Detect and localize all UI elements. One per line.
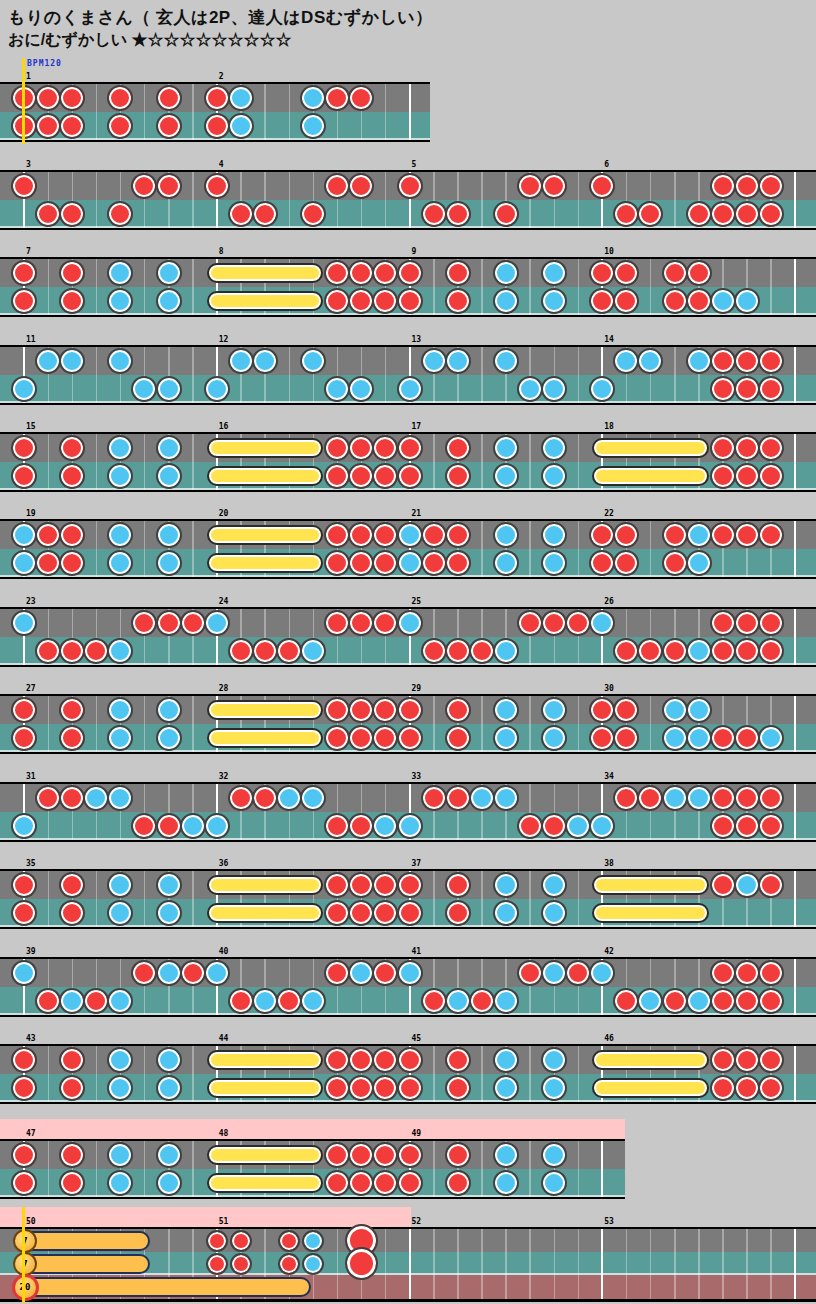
don-note — [710, 872, 736, 898]
beat-line — [650, 259, 652, 315]
measure-number: 7 — [26, 247, 31, 256]
ka-note — [156, 260, 182, 286]
don-note — [710, 638, 736, 664]
don-note — [421, 201, 447, 227]
ka-note — [493, 1047, 519, 1073]
don-note — [228, 201, 254, 227]
beat-line — [96, 84, 98, 140]
big-don-note — [345, 1247, 378, 1280]
don-note — [421, 522, 447, 548]
don-note — [59, 900, 85, 926]
beat-line — [481, 521, 483, 577]
beat-line — [264, 84, 266, 140]
ka-note — [541, 725, 567, 751]
measure-number: 35 — [26, 859, 36, 868]
don-note — [11, 1142, 37, 1168]
don-note — [517, 173, 543, 199]
ka-note — [156, 435, 182, 461]
don-note — [710, 348, 736, 374]
bpm-label: BPM120 — [27, 59, 62, 68]
don-note — [230, 1230, 252, 1252]
ka-note — [204, 376, 230, 402]
ka-note — [493, 900, 519, 926]
beat-line — [144, 521, 146, 577]
ka-note — [11, 550, 37, 576]
ka-note — [11, 813, 37, 839]
beat-line — [578, 1046, 580, 1102]
measure-number: 29 — [412, 684, 422, 693]
start-line — [22, 1207, 25, 1303]
measure-number: 27 — [26, 684, 36, 693]
don-note — [397, 260, 423, 286]
don-note — [59, 785, 85, 811]
don-note — [276, 988, 302, 1014]
don-note — [758, 960, 784, 986]
don-note — [11, 435, 37, 461]
ka-note — [300, 988, 326, 1014]
don-note — [710, 610, 736, 636]
balloon-tail-bar — [16, 1277, 311, 1297]
don-note — [59, 463, 85, 489]
don-note — [11, 260, 37, 286]
don-note — [541, 813, 567, 839]
measure-number: 39 — [26, 947, 36, 956]
measure-number: 26 — [604, 597, 614, 606]
barline — [794, 259, 796, 315]
ka-note — [493, 988, 519, 1014]
difficulty-line: おに/むずかしい ★☆☆☆☆☆☆☆☆☆ — [8, 30, 292, 51]
beat-line — [529, 871, 531, 927]
beat-line — [192, 871, 194, 927]
beat-line — [192, 434, 194, 490]
beat-line — [650, 521, 652, 577]
ka-note — [686, 697, 712, 723]
drumroll-bar — [207, 1145, 323, 1165]
gogo-strip — [0, 1207, 411, 1227]
ka-note — [35, 348, 61, 374]
don-note — [710, 988, 736, 1014]
ka-note — [493, 1075, 519, 1101]
don-note — [397, 900, 423, 926]
don-note — [206, 1230, 228, 1252]
don-note — [11, 697, 37, 723]
measure-number: 23 — [26, 597, 36, 606]
don-note — [445, 1170, 471, 1196]
ka-note — [686, 550, 712, 576]
beat-line — [433, 871, 435, 927]
don-note — [11, 725, 37, 751]
ka-note — [541, 1047, 567, 1073]
beat-line — [722, 1229, 724, 1299]
measure-number: 42 — [604, 947, 614, 956]
ka-note — [156, 1170, 182, 1196]
ka-note — [228, 85, 254, 111]
measure-number: 44 — [219, 1034, 229, 1043]
don-note — [11, 173, 37, 199]
beat-line — [698, 1229, 700, 1299]
don-note — [156, 610, 182, 636]
beat-line — [650, 696, 652, 752]
beat-line — [650, 1229, 652, 1299]
don-note — [565, 610, 591, 636]
beat-line — [96, 1046, 98, 1102]
ka-note — [493, 435, 519, 461]
measure-number: 2 — [219, 72, 224, 81]
don-note — [59, 435, 85, 461]
don-note — [758, 522, 784, 548]
beat-line — [433, 259, 435, 315]
measure-number: 33 — [412, 772, 422, 781]
don-note — [35, 550, 61, 576]
row-border-bottom — [0, 315, 816, 317]
beat-line — [433, 1046, 435, 1102]
don-note — [397, 1170, 423, 1196]
don-note — [493, 201, 519, 227]
don-note — [421, 638, 447, 664]
don-note — [734, 638, 760, 664]
beat-line — [433, 1229, 435, 1299]
don-note — [445, 550, 471, 576]
ka-note — [541, 463, 567, 489]
ka-note — [686, 785, 712, 811]
ka-note — [517, 376, 543, 402]
barline — [409, 1229, 411, 1299]
don-note — [397, 1047, 423, 1073]
measure-number: 21 — [412, 509, 422, 518]
don-note — [541, 610, 567, 636]
don-note — [710, 1047, 736, 1073]
beat-line — [192, 347, 194, 403]
ka-note — [541, 960, 567, 986]
row-border-bottom — [0, 490, 816, 492]
ka-note — [493, 872, 519, 898]
don-note — [59, 1047, 85, 1073]
measure-number: 43 — [26, 1034, 36, 1043]
ka-note — [421, 348, 447, 374]
don-note — [734, 348, 760, 374]
don-note — [710, 725, 736, 751]
barline — [794, 959, 796, 1015]
ka-note — [710, 288, 736, 314]
beat-line — [505, 1229, 507, 1299]
don-note — [59, 522, 85, 548]
beat-line — [529, 1229, 531, 1299]
ka-note — [397, 550, 423, 576]
drumroll-bar — [207, 263, 323, 283]
beat-line — [529, 521, 531, 577]
don-note — [758, 173, 784, 199]
ka-note — [397, 813, 423, 839]
measure-number: 30 — [604, 684, 614, 693]
ka-note — [59, 988, 85, 1014]
barline — [601, 1229, 603, 1299]
beat-line — [578, 696, 580, 752]
row-border-bottom — [0, 1102, 816, 1104]
drumroll-bar — [592, 438, 708, 458]
don-note — [758, 348, 784, 374]
row-border-bottom — [0, 228, 816, 230]
don-note — [35, 785, 61, 811]
beat-line — [192, 1141, 194, 1197]
measure-number: 50 — [26, 1217, 36, 1226]
don-note — [445, 201, 471, 227]
beat-line — [192, 84, 194, 140]
don-note — [734, 201, 760, 227]
don-note — [59, 697, 85, 723]
don-note — [421, 785, 447, 811]
don-note — [397, 288, 423, 314]
beat-line — [337, 1229, 339, 1299]
beat-line — [746, 1229, 748, 1299]
beat-line — [433, 696, 435, 752]
beat-line — [481, 172, 483, 228]
don-note — [397, 1075, 423, 1101]
beat-line — [96, 259, 98, 315]
don-note — [59, 85, 85, 111]
beat-line — [481, 434, 483, 490]
don-note — [662, 260, 688, 286]
don-note — [710, 1075, 736, 1101]
beat-line — [144, 259, 146, 315]
don-note — [734, 173, 760, 199]
don-note — [252, 785, 278, 811]
don-note — [445, 900, 471, 926]
ka-note — [541, 1142, 567, 1168]
don-note — [59, 201, 85, 227]
beat-line — [529, 434, 531, 490]
don-note — [59, 288, 85, 314]
beat-line — [144, 1141, 146, 1197]
drumroll-bar — [592, 903, 708, 923]
don-note — [180, 610, 206, 636]
beat-line — [48, 434, 50, 490]
measure-number: 48 — [219, 1129, 229, 1138]
ka-note — [204, 813, 230, 839]
row-border-bottom — [0, 1299, 816, 1302]
measure-number: 17 — [412, 422, 422, 431]
ka-note — [493, 785, 519, 811]
ka-note — [493, 638, 519, 664]
don-note — [35, 522, 61, 548]
beat-line — [385, 1229, 387, 1299]
ka-note — [493, 550, 519, 576]
don-note — [734, 960, 760, 986]
don-note — [758, 1075, 784, 1101]
don-note — [35, 988, 61, 1014]
don-note — [445, 697, 471, 723]
drumroll-bar — [207, 1173, 323, 1193]
ka-note — [686, 638, 712, 664]
ka-note — [662, 697, 688, 723]
ka-note — [59, 348, 85, 374]
ka-note — [397, 610, 423, 636]
ka-note — [252, 348, 278, 374]
ka-note — [758, 725, 784, 751]
don-note — [11, 900, 37, 926]
don-note — [445, 785, 471, 811]
don-note — [228, 988, 254, 1014]
ka-note — [686, 348, 712, 374]
don-note — [710, 785, 736, 811]
balloon-note: 20 — [12, 1274, 39, 1301]
measure-number: 1 — [26, 72, 31, 81]
ka-note — [156, 376, 182, 402]
measure-number: 45 — [412, 1034, 422, 1043]
beat-line — [529, 1141, 531, 1197]
ka-note — [156, 550, 182, 576]
measure-number: 51 — [219, 1217, 229, 1226]
beat-line — [457, 1229, 459, 1299]
don-note — [59, 725, 85, 751]
don-note — [710, 435, 736, 461]
balloon-note: 7 — [13, 1252, 37, 1276]
beat-line — [578, 347, 580, 403]
beat-line — [481, 1229, 483, 1299]
don-note — [734, 725, 760, 751]
ka-note — [302, 1253, 324, 1275]
don-note — [734, 522, 760, 548]
measure-number: 15 — [26, 422, 36, 431]
ka-note — [734, 872, 760, 898]
drumroll-bar — [207, 438, 323, 458]
measure-number: 6 — [604, 160, 609, 169]
ka-note — [204, 610, 230, 636]
don-note — [710, 173, 736, 199]
beat-line — [96, 347, 98, 403]
beat-line — [96, 434, 98, 490]
beat-line — [529, 1046, 531, 1102]
beat-line — [433, 1141, 435, 1197]
don-note — [204, 85, 230, 111]
beat-line — [192, 521, 194, 577]
beat-line — [481, 871, 483, 927]
don-note — [445, 725, 471, 751]
beat-line — [96, 696, 98, 752]
beat-line — [96, 871, 98, 927]
don-note — [11, 1075, 37, 1101]
beat-line — [385, 172, 387, 228]
drumroll-bar — [207, 728, 323, 748]
beat-line — [481, 259, 483, 315]
don-note — [517, 610, 543, 636]
don-note — [517, 813, 543, 839]
measure-number: 14 — [604, 335, 614, 344]
beat-line — [674, 347, 676, 403]
don-note — [445, 872, 471, 898]
barline — [794, 784, 796, 840]
don-note — [252, 201, 278, 227]
ka-note — [397, 522, 423, 548]
measure-number: 10 — [604, 247, 614, 256]
ka-note — [302, 1230, 324, 1252]
ka-note — [228, 113, 254, 139]
don-note — [230, 1253, 252, 1275]
don-note — [397, 463, 423, 489]
don-note — [445, 1075, 471, 1101]
barline — [794, 1046, 796, 1102]
beat-line — [578, 172, 580, 228]
measure-number: 8 — [219, 247, 224, 256]
beat-line — [529, 259, 531, 315]
measure-number: 28 — [219, 684, 229, 693]
don-note — [156, 813, 182, 839]
beat-line — [144, 84, 146, 140]
ka-note — [686, 522, 712, 548]
don-note — [397, 872, 423, 898]
row-border-bottom — [0, 1015, 816, 1017]
don-note — [35, 638, 61, 664]
don-note — [710, 201, 736, 227]
measure-number: 46 — [604, 1034, 614, 1043]
don-note — [278, 1230, 300, 1252]
don-note — [11, 288, 37, 314]
don-note — [662, 638, 688, 664]
beat-line — [96, 1141, 98, 1197]
beat-line — [144, 434, 146, 490]
ka-note — [276, 785, 302, 811]
start-line — [22, 58, 25, 144]
don-note — [758, 610, 784, 636]
don-note — [734, 785, 760, 811]
don-note — [734, 376, 760, 402]
ka-note — [565, 813, 591, 839]
ka-note — [541, 522, 567, 548]
beat-line — [144, 871, 146, 927]
row-border-bottom — [0, 927, 816, 929]
don-note — [710, 376, 736, 402]
barline — [794, 696, 796, 752]
don-note — [11, 1170, 37, 1196]
ka-note — [156, 1142, 182, 1168]
barline — [409, 84, 411, 140]
beat-line — [481, 1141, 483, 1197]
beat-line — [578, 871, 580, 927]
don-note — [35, 85, 61, 111]
don-note — [758, 201, 784, 227]
barline — [794, 172, 796, 228]
row-border-bottom — [0, 840, 816, 842]
measure-number: 32 — [219, 772, 229, 781]
row-border-bottom — [0, 1197, 625, 1199]
ka-note — [156, 288, 182, 314]
don-note — [300, 201, 326, 227]
ka-note — [493, 260, 519, 286]
don-note — [662, 988, 688, 1014]
barline — [794, 347, 796, 403]
ka-note — [300, 113, 326, 139]
ka-note — [252, 988, 278, 1014]
drumroll-bar — [207, 291, 323, 311]
ka-note — [156, 463, 182, 489]
balloon-note: 7 — [13, 1229, 37, 1253]
measure-number: 13 — [412, 335, 422, 344]
don-note — [278, 1253, 300, 1275]
measure-number: 24 — [219, 597, 229, 606]
don-note — [156, 173, 182, 199]
drumroll-bar — [207, 875, 323, 895]
don-note — [204, 173, 230, 199]
don-note — [758, 988, 784, 1014]
measure-number: 20 — [219, 509, 229, 518]
don-note — [517, 960, 543, 986]
barline — [794, 434, 796, 490]
don-note — [180, 960, 206, 986]
don-note — [59, 1170, 85, 1196]
ka-note — [541, 435, 567, 461]
ka-note — [300, 785, 326, 811]
beat-line — [481, 347, 483, 403]
ka-note — [156, 900, 182, 926]
